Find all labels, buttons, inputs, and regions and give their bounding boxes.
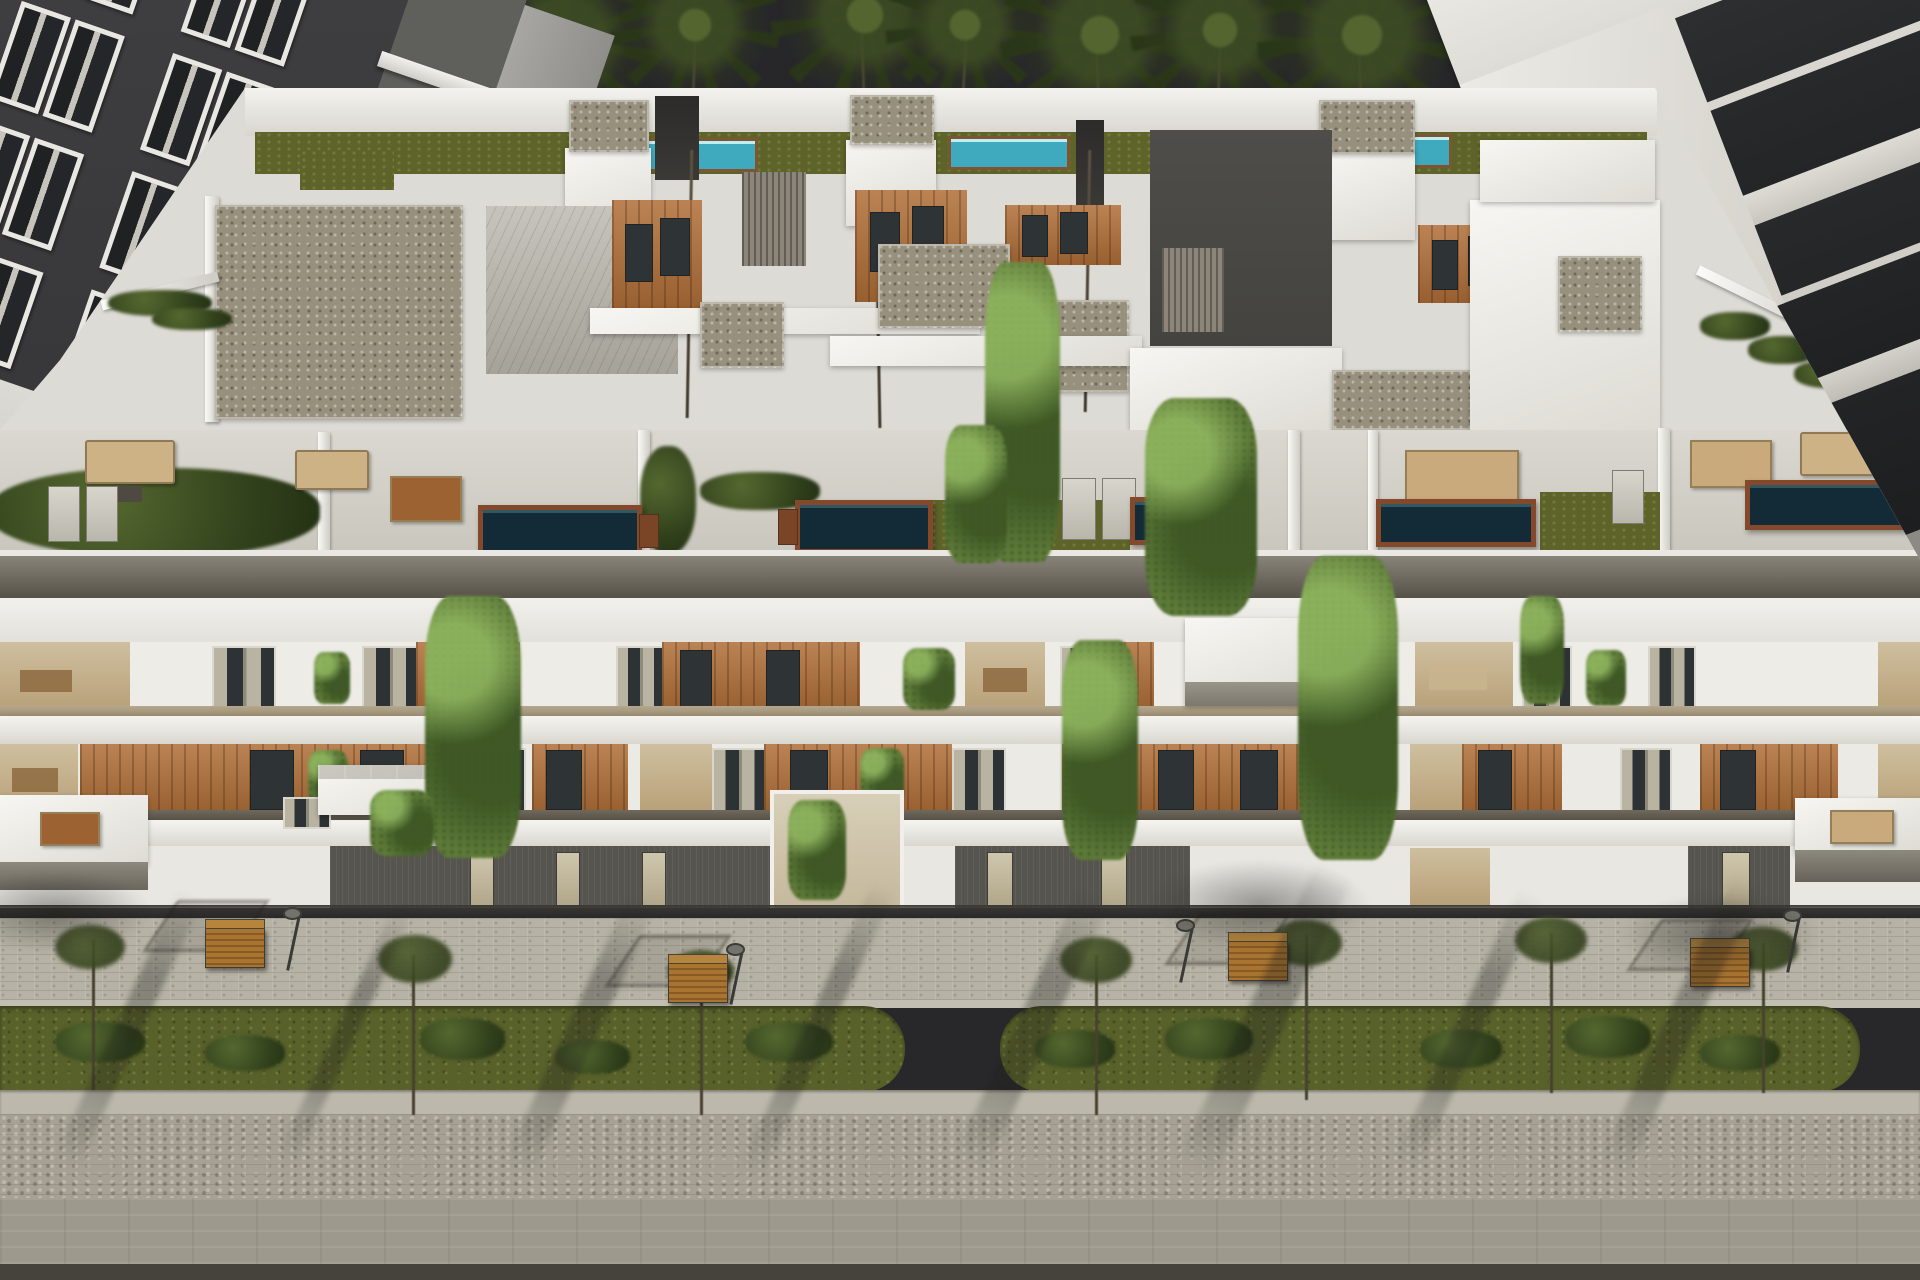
roof-parapet <box>245 88 1657 136</box>
street-bush <box>1565 1016 1651 1058</box>
interior-opening <box>1410 848 1490 906</box>
green-roof-patch <box>300 150 394 190</box>
ivy-column <box>1298 556 1398 860</box>
ivy-cascade <box>1145 398 1257 616</box>
dining-table <box>390 476 462 522</box>
interior-opening <box>1878 642 1920 712</box>
balcony-plant <box>1586 650 1626 706</box>
outdoor-sofa <box>85 440 175 484</box>
wood-clad-opening <box>532 744 628 814</box>
sun-lounger <box>1612 470 1644 524</box>
balcony-fascia <box>1795 850 1920 882</box>
window-pair <box>362 646 420 712</box>
louver-screen <box>1162 248 1224 332</box>
pool-steps <box>639 514 659 548</box>
gravel-roof-patch <box>700 302 784 368</box>
gravel-roof-patch <box>1332 370 1472 430</box>
dining-table <box>1405 450 1519 504</box>
balcony-dining-table <box>1830 810 1894 844</box>
window <box>1432 240 1458 290</box>
window-pair <box>212 646 276 712</box>
street-bush <box>420 1018 505 1060</box>
window-pair <box>616 646 666 712</box>
interior-opening <box>965 642 1045 712</box>
street-bush <box>1700 1035 1780 1071</box>
street-bush <box>205 1035 285 1071</box>
stair-bulkhead-gravel-roof <box>1319 100 1415 154</box>
window-pair <box>712 748 768 814</box>
bench-backrest <box>668 954 728 964</box>
facade-ground-floor <box>0 846 1920 908</box>
party-wall <box>1288 430 1300 554</box>
planter-shrubs <box>152 308 232 330</box>
window-pair <box>1648 646 1696 712</box>
sun-lounger <box>86 486 118 542</box>
window <box>1060 212 1088 254</box>
facade-fascia <box>0 598 1920 642</box>
balcony-slab <box>0 716 1920 744</box>
sun-lounger <box>48 486 80 542</box>
ivy-column <box>1062 640 1138 860</box>
street <box>0 905 1920 1280</box>
window-pair <box>1620 748 1672 814</box>
white-roof-volume <box>1480 140 1655 202</box>
street-bench <box>668 963 728 1003</box>
balcony-dining-table <box>40 812 100 846</box>
terrace-plunge-pool <box>795 500 933 554</box>
facade-floor-3 <box>0 642 1920 712</box>
entrance-shrub <box>788 800 846 900</box>
main-building <box>0 0 1920 908</box>
gravel-roof-large <box>215 205 463 419</box>
terrace-plunge-pool <box>1376 499 1536 547</box>
ivy-cascade <box>945 425 1007 563</box>
window <box>660 218 690 276</box>
rooftop-lap-pool <box>948 136 1070 170</box>
balcony-deck-strip <box>0 706 1920 716</box>
bench-backrest <box>205 919 265 929</box>
interior-opening <box>1410 744 1462 814</box>
lamp-head <box>726 943 745 956</box>
ivy-column <box>425 596 521 858</box>
pool-steps <box>778 509 798 545</box>
ivy-shrub <box>370 790 434 856</box>
stair-bulkhead-gravel-roof <box>569 100 649 152</box>
louver-clad-core <box>742 172 806 266</box>
frond-shadow <box>1150 860 1370 950</box>
outdoor-sofa <box>295 450 369 490</box>
hedge <box>1700 312 1770 340</box>
interior-opening <box>0 642 130 712</box>
interior-opening <box>640 744 712 814</box>
ivy-shrub <box>903 648 955 710</box>
wood-clad-opening <box>1462 744 1562 814</box>
window <box>1022 215 1048 257</box>
lamp-head <box>283 907 302 920</box>
frond-shadow <box>1620 895 1820 975</box>
wood-clad-opening <box>662 642 860 712</box>
road-dark-edge <box>0 1264 1920 1280</box>
ivy-column <box>1520 596 1564 704</box>
gravel-roof-patch <box>1558 256 1642 332</box>
window-pair <box>952 748 1006 814</box>
street-bench <box>205 928 265 968</box>
window <box>625 224 653 282</box>
interior-opening <box>1415 642 1513 712</box>
sun-lounger <box>1062 478 1096 540</box>
stair-bulkhead-gravel-roof <box>850 95 934 145</box>
architectural-render-scene <box>0 0 1920 1280</box>
balcony-plant <box>314 652 350 704</box>
